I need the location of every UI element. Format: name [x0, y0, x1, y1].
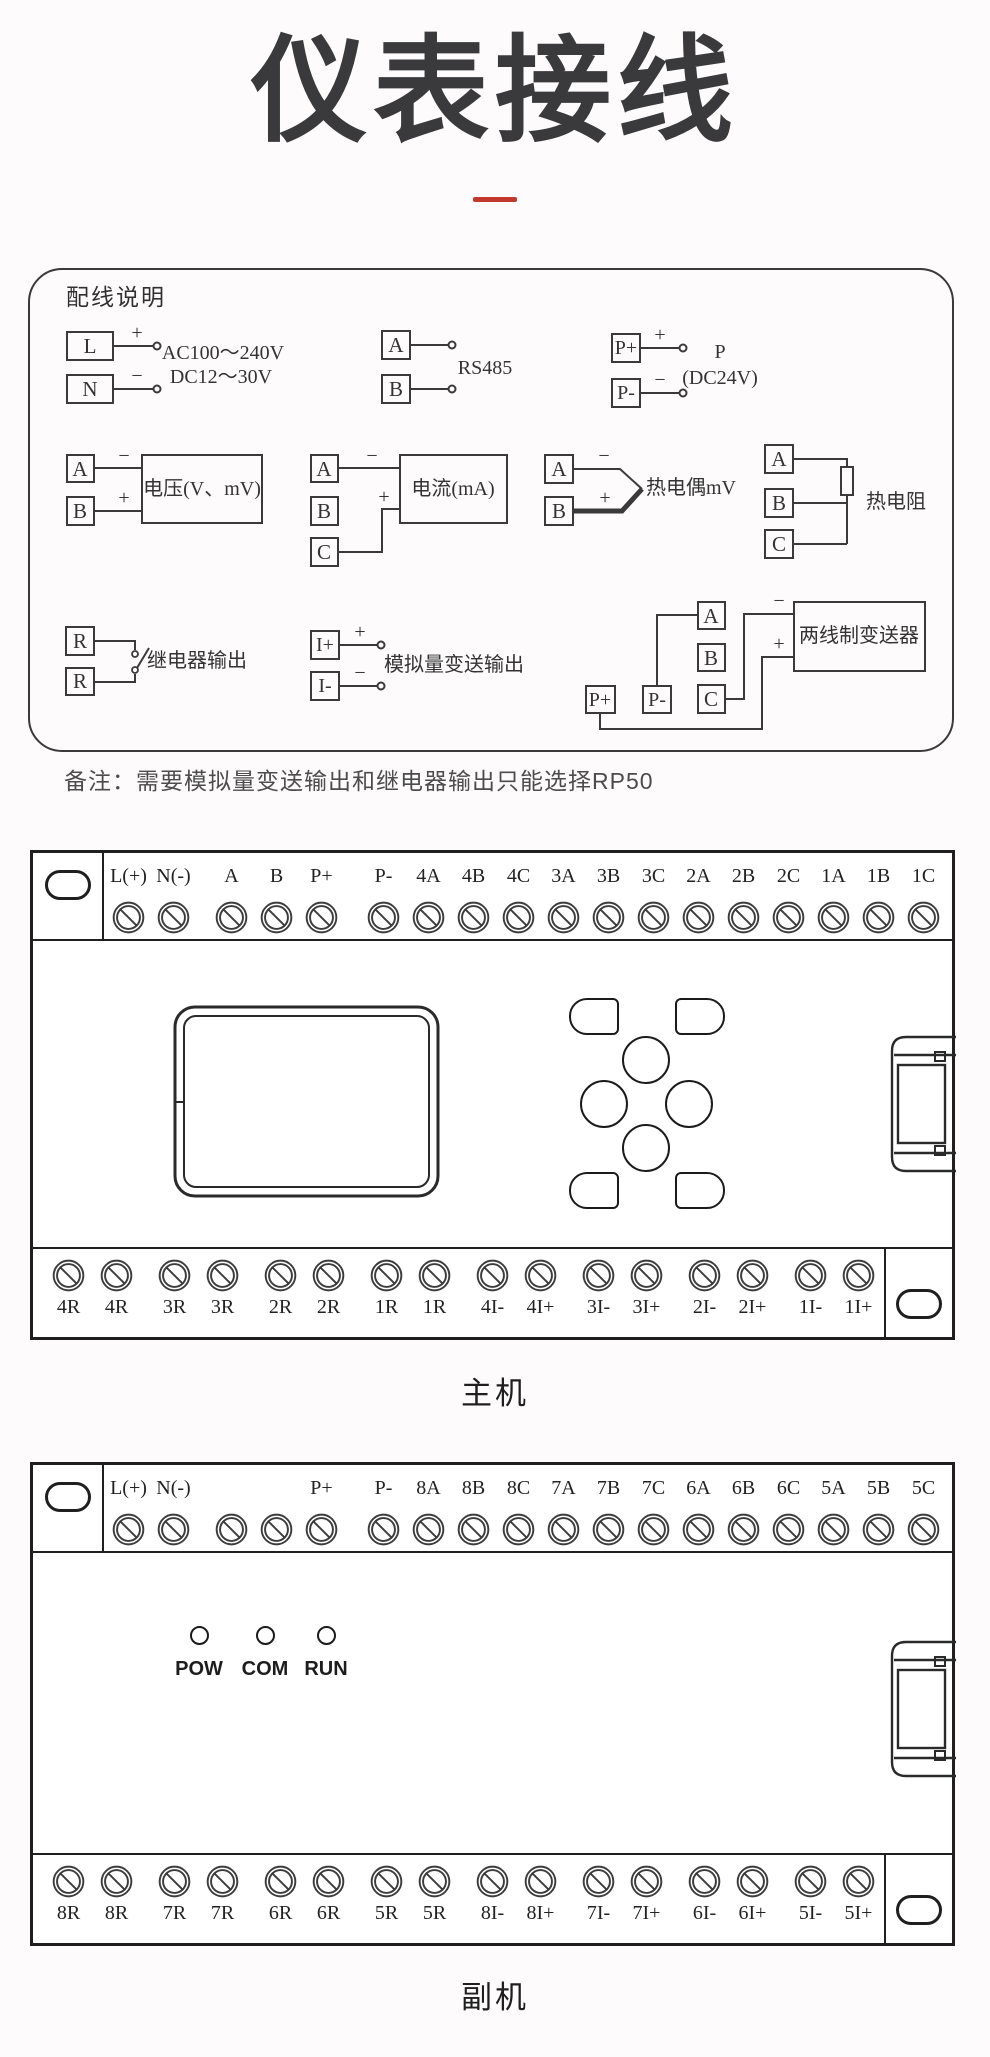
terminal-I-minus: I- — [318, 675, 331, 697]
screw-icon — [100, 1259, 133, 1292]
led-run-indicator — [317, 1626, 336, 1645]
power-supply-diagram: L + N − AC100～240V DC12～30V — [67, 322, 285, 403]
key-right-button — [665, 1080, 713, 1128]
terminal-label: 8R — [57, 1900, 80, 1926]
terminal: 4R — [46, 1249, 91, 1320]
terminal: L(+) — [106, 853, 151, 934]
plus-sign: + — [131, 322, 142, 344]
terminal-label: 1B — [867, 863, 890, 889]
screw-icon — [688, 1865, 721, 1898]
terminal-label: 4R — [105, 1294, 128, 1320]
screw-icon — [476, 1865, 509, 1898]
terminal: 1I- — [788, 1249, 833, 1320]
terminal-label: B — [270, 863, 283, 889]
terminal: 7R — [152, 1855, 197, 1926]
key-top-right-button — [675, 998, 725, 1035]
terminal: N(-) — [151, 1465, 196, 1546]
screw-icon — [637, 1513, 670, 1546]
terminal-A: A — [771, 447, 787, 471]
led-com: COM — [233, 1626, 297, 1681]
screw-icon — [592, 901, 625, 934]
thermocouple-diagram: A B − + 热电偶mV — [545, 445, 737, 525]
screw-icon — [862, 1513, 895, 1546]
terminal: 6R — [306, 1855, 351, 1926]
terminal: 5C — [901, 1465, 946, 1546]
current-input-diagram: A B C − + 电流(mA) — [311, 445, 507, 566]
mount-hole-cell — [884, 1855, 952, 1943]
minus-sign: − — [654, 369, 665, 391]
terminal-B: B — [772, 491, 786, 515]
terminal: 6I+ — [730, 1855, 775, 1926]
screw-icon — [370, 1259, 403, 1292]
terminal-label: 5R — [375, 1900, 398, 1926]
terminal: 4R — [94, 1249, 139, 1320]
terminal-label: P+ — [310, 863, 332, 889]
screw-icon — [524, 1865, 557, 1898]
terminal-label: 8I- — [481, 1900, 504, 1926]
terminal: B — [254, 853, 299, 934]
screw-icon — [305, 1513, 338, 1546]
screw-icon — [817, 901, 850, 934]
terminal-label: P+ — [310, 1475, 332, 1501]
terminal-label: 6R — [269, 1900, 292, 1926]
terminal-label: 4C — [507, 863, 530, 889]
terminal: 6B — [721, 1465, 766, 1546]
rs485-label: RS485 — [458, 357, 512, 379]
key-bottom-left-button — [569, 1172, 619, 1209]
screw-icon — [794, 1865, 827, 1898]
terminal-label: 1I- — [799, 1294, 822, 1320]
terminal: 8I- — [470, 1855, 515, 1926]
terminal-C: C — [704, 687, 718, 711]
terminal: 6R — [258, 1855, 303, 1926]
terminal-label: 1C — [912, 863, 935, 889]
terminal: 7C — [631, 1465, 676, 1546]
terminal: 3C — [631, 853, 676, 934]
terminal: 3I+ — [624, 1249, 669, 1320]
key-left-button — [580, 1080, 628, 1128]
transmitter-box-label: 两线制变送器 — [799, 624, 919, 647]
relay-output-diagram: R R 继电器输出 — [66, 627, 247, 695]
terminal: 3A — [541, 853, 586, 934]
screw-icon — [206, 1259, 239, 1292]
screw-icon — [367, 901, 400, 934]
terminal-label: 5C — [912, 1475, 935, 1501]
key-bottom-right-button — [675, 1172, 725, 1209]
screw-icon — [457, 901, 490, 934]
screw-icon — [582, 1865, 615, 1898]
terminal-label: 8I+ — [527, 1900, 555, 1926]
terminal-label: 7I- — [587, 1900, 610, 1926]
terminal-N: N — [82, 377, 97, 401]
terminal: 4A — [406, 853, 451, 934]
terminal: 2R — [258, 1249, 303, 1320]
terminal-label: N(-) — [156, 863, 190, 889]
terminal-label: L(+) — [110, 1475, 147, 1501]
terminal-label: 1R — [375, 1294, 398, 1320]
terminal-label: 3C — [642, 863, 665, 889]
terminal: 7I+ — [624, 1855, 669, 1926]
key-down-button — [622, 1124, 670, 1172]
minus-sign: − — [354, 662, 365, 684]
led-com-label: COM — [233, 1658, 297, 1681]
terminal-label: 6R — [317, 1900, 340, 1926]
sub-top-terminals: L(+) N(-) — [104, 1465, 952, 1551]
led-pow-label: POW — [167, 1658, 231, 1681]
screw-icon — [112, 901, 145, 934]
p24-diagram: P+ + P- − P (DC24V) — [612, 324, 758, 407]
terminal-B: B — [552, 499, 566, 523]
terminal-label: 4R — [57, 1294, 80, 1320]
plus-sign: + — [118, 487, 129, 509]
p24-label: P — [714, 341, 725, 363]
terminal: 6I- — [682, 1855, 727, 1926]
screw-icon — [412, 1513, 445, 1546]
sub-bottom-terminal-strip: 8R 8R 7R 7R — [33, 1853, 952, 1943]
side-connector — [888, 1035, 956, 1173]
screw-icon — [682, 901, 715, 934]
terminal-label: P- — [375, 1475, 393, 1501]
terminal-label: 5A — [821, 1475, 845, 1501]
terminal-label: 2R — [269, 1294, 292, 1320]
terminal-label: 3I+ — [633, 1294, 661, 1320]
screw-icon — [682, 1513, 715, 1546]
terminal: 3R — [152, 1249, 197, 1320]
terminal: 8R — [46, 1855, 91, 1926]
terminal — [254, 1465, 299, 1546]
terminal: 7B — [586, 1465, 631, 1546]
terminal: 5B — [856, 1465, 901, 1546]
terminal: P+ — [299, 853, 344, 934]
terminal: 5R — [412, 1855, 457, 1926]
screw-icon — [52, 1865, 85, 1898]
terminal-label: 7R — [163, 1900, 186, 1926]
terminal-label: A — [224, 863, 238, 889]
terminal-P-minus: P- — [648, 689, 666, 711]
terminal: N(-) — [151, 853, 196, 934]
terminal-label: N(-) — [156, 1475, 190, 1501]
main-unit-panel: L(+) N(-) A B — [30, 850, 955, 1340]
minus-sign: − — [118, 445, 129, 467]
thermocouple-label: 热电偶mV — [646, 476, 737, 499]
screw-icon — [412, 901, 445, 934]
power-range-dc: DC12～30V — [170, 366, 273, 388]
terminal: 2R — [306, 1249, 351, 1320]
screw-icon — [736, 1259, 769, 1292]
screw-icon — [637, 901, 670, 934]
screw-icon — [158, 1865, 191, 1898]
screw-icon — [206, 1865, 239, 1898]
terminal-label: 6B — [732, 1475, 755, 1501]
terminal: 6A — [676, 1465, 721, 1546]
plus-sign: + — [354, 621, 365, 643]
terminal-P-plus: P+ — [615, 337, 637, 359]
terminal: 1R — [364, 1249, 409, 1320]
analog-output-diagram: I+ + I- − 模拟量变送输出 — [311, 621, 524, 700]
screw-icon — [112, 1513, 145, 1546]
sub-unit-caption: 副机 — [0, 1972, 990, 2017]
terminal-label: 5R — [423, 1900, 446, 1926]
led-pow-indicator — [190, 1626, 209, 1645]
terminal-C: C — [317, 540, 331, 564]
screw-icon — [264, 1259, 297, 1292]
terminal-P-plus: P+ — [589, 689, 611, 711]
terminal-label: 2I- — [693, 1294, 716, 1320]
terminal-label: 7R — [211, 1900, 234, 1926]
terminal-B: B — [389, 377, 403, 401]
terminal-label: 4B — [462, 863, 485, 889]
terminal: 5R — [364, 1855, 409, 1926]
current-box-label: 电流(mA) — [411, 477, 494, 500]
page-title: 仪表接线 — [0, 28, 990, 156]
terminal: P- — [361, 1465, 406, 1546]
terminal-label: 6A — [686, 1475, 710, 1501]
terminal-label: 7I+ — [633, 1900, 661, 1926]
main-bottom-terminal-strip: 4R 4R 3R 3R — [33, 1247, 952, 1337]
screw-icon — [817, 1513, 850, 1546]
wiring-explanation-box: 配线说明 L + N − AC100～240V DC12～30V A B — [28, 268, 954, 752]
terminal: 2I+ — [730, 1249, 775, 1320]
terminal-label: 8B — [462, 1475, 485, 1501]
voltage-box-label: 电压(V、mV) — [143, 477, 261, 500]
terminal: 4B — [451, 853, 496, 934]
plus-sign: + — [599, 487, 610, 509]
lcd-display-window — [173, 1005, 440, 1198]
plus-sign: + — [378, 486, 389, 508]
screw-icon — [862, 901, 895, 934]
terminal: 7A — [541, 1465, 586, 1546]
sub-bottom-terminals: 8R 8R 7R 7R — [33, 1855, 884, 1943]
minus-sign: − — [773, 590, 784, 612]
mount-hole-cell — [33, 1465, 104, 1551]
terminal: 2I- — [682, 1249, 727, 1320]
p24-voltage: (DC24V) — [682, 367, 758, 389]
screw-icon — [907, 901, 940, 934]
terminal: 8B — [451, 1465, 496, 1546]
terminal-label: 1I+ — [845, 1294, 873, 1320]
screw-icon — [370, 1865, 403, 1898]
main-top-terminal-strip: L(+) N(-) A B — [33, 853, 952, 941]
terminal: 1C — [901, 853, 946, 934]
screw-icon — [907, 1513, 940, 1546]
terminal: 4C — [496, 853, 541, 934]
screw-icon — [502, 1513, 535, 1546]
power-range-ac: AC100～240V — [162, 342, 285, 364]
terminal-label: 5B — [867, 1475, 890, 1501]
terminal-A: A — [551, 457, 567, 481]
screw-icon — [312, 1865, 345, 1898]
screw-icon — [794, 1259, 827, 1292]
screw-icon — [100, 1865, 133, 1898]
terminal-B: B — [73, 499, 87, 523]
screw-icon — [305, 901, 338, 934]
terminal-P-minus: P- — [617, 382, 635, 404]
mount-hole-cell — [33, 853, 104, 939]
terminal-label: 3R — [211, 1294, 234, 1320]
terminal-label: 5I+ — [845, 1900, 873, 1926]
screw-icon — [630, 1259, 663, 1292]
led-com-indicator — [256, 1626, 275, 1645]
terminal-label: 8C — [507, 1475, 530, 1501]
terminal-label: 7C — [642, 1475, 665, 1501]
screw-icon — [260, 1513, 293, 1546]
terminal-B: B — [704, 646, 718, 670]
sub-top-terminal-strip: L(+) N(-) — [33, 1465, 952, 1553]
terminal: 1B — [856, 853, 901, 934]
screw-icon — [772, 901, 805, 934]
terminal: 3R — [200, 1249, 245, 1320]
screw-icon — [367, 1513, 400, 1546]
terminal-label: 1R — [423, 1294, 446, 1320]
terminal-label: 7B — [597, 1475, 620, 1501]
terminal-label: 2A — [686, 863, 710, 889]
minus-sign: − — [366, 445, 377, 467]
terminal-label: 5I- — [799, 1900, 822, 1926]
screw-icon — [842, 1865, 875, 1898]
rtd-diagram: A B C 热电阻 — [765, 445, 926, 558]
terminal: 8A — [406, 1465, 451, 1546]
terminal: 1R — [412, 1249, 457, 1320]
mount-hole — [45, 870, 91, 900]
rs485-diagram: A B RS485 — [382, 331, 512, 403]
terminal-A: A — [703, 604, 719, 628]
terminal-label: 3A — [551, 863, 575, 889]
terminal: 8C — [496, 1465, 541, 1546]
sub-unit-panel: L(+) N(-) — [30, 1462, 955, 1946]
rtd-label: 热电阻 — [866, 490, 926, 513]
led-run: RUN — [294, 1626, 358, 1681]
screw-icon — [524, 1259, 557, 1292]
terminal-label: 8A — [416, 1475, 440, 1501]
screw-icon — [547, 901, 580, 934]
terminal-label: 2I+ — [739, 1294, 767, 1320]
two-wire-transmitter-diagram: A B C P+ P- − + 两线制变送器 — [586, 590, 925, 729]
key-top-left-button — [569, 998, 619, 1035]
terminal-label: 6C — [777, 1475, 800, 1501]
terminal-label: 4I- — [481, 1294, 504, 1320]
mount-hole — [896, 1289, 942, 1319]
terminal: 4I+ — [518, 1249, 563, 1320]
screw-icon — [457, 1513, 490, 1546]
terminal: 2C — [766, 853, 811, 934]
keypad — [569, 998, 729, 1213]
title-underline-dash — [473, 197, 517, 202]
terminal: 4I- — [470, 1249, 515, 1320]
screw-icon — [215, 1513, 248, 1546]
screw-icon — [630, 1865, 663, 1898]
terminal-R2: R — [73, 669, 87, 693]
terminal: 5I+ — [836, 1855, 881, 1926]
screw-icon — [260, 901, 293, 934]
terminal-label: L(+) — [110, 863, 147, 889]
screw-icon — [842, 1259, 875, 1292]
terminal: 2B — [721, 853, 766, 934]
terminal-label: 4A — [416, 863, 440, 889]
note-text: 备注：需要模拟量变送输出和继电器输出只能选择RP50 — [64, 762, 654, 796]
screw-icon — [772, 1513, 805, 1546]
minus-sign: − — [131, 365, 142, 387]
terminal-label: 6I- — [693, 1900, 716, 1926]
screw-icon — [158, 1259, 191, 1292]
terminal: P+ — [299, 1465, 344, 1546]
terminal: 1A — [811, 853, 856, 934]
screw-icon — [582, 1259, 615, 1292]
screw-icon — [476, 1259, 509, 1292]
analog-output-label: 模拟量变送输出 — [384, 653, 524, 676]
terminal: 5A — [811, 1465, 856, 1546]
terminal-label: 3B — [597, 863, 620, 889]
terminal: 3I- — [576, 1249, 621, 1320]
terminal: 7I- — [576, 1855, 621, 1926]
terminal-A: A — [316, 457, 332, 481]
main-bottom-terminals: 4R 4R 3R 3R — [33, 1249, 884, 1337]
terminal-C: C — [772, 532, 786, 556]
terminal: 6C — [766, 1465, 811, 1546]
screw-icon — [418, 1259, 451, 1292]
terminal-B: B — [317, 499, 331, 523]
terminal: L(+) — [106, 1465, 151, 1546]
terminal-label: 8R — [105, 1900, 128, 1926]
screw-icon — [264, 1865, 297, 1898]
resistor-symbol — [841, 467, 853, 495]
terminal: 8I+ — [518, 1855, 563, 1926]
screw-icon — [52, 1259, 85, 1292]
mount-hole — [896, 1895, 942, 1925]
terminal — [209, 1465, 254, 1546]
led-run-label: RUN — [294, 1658, 358, 1681]
terminal-label: 2B — [732, 863, 755, 889]
screw-icon — [727, 901, 760, 934]
terminal: 8R — [94, 1855, 139, 1926]
screw-icon — [727, 1513, 760, 1546]
terminal-L: L — [84, 334, 97, 358]
screw-icon — [688, 1259, 721, 1292]
terminal-label: 1A — [821, 863, 845, 889]
wiring-diagrams: L + N − AC100～240V DC12～30V A B RS485 — [30, 270, 956, 754]
terminal: 3B — [586, 853, 631, 934]
terminal-I-plus: I+ — [316, 634, 334, 656]
key-up-button — [622, 1036, 670, 1084]
terminal: P- — [361, 853, 406, 934]
terminal: 2A — [676, 853, 721, 934]
main-top-terminals: L(+) N(-) A B — [104, 853, 952, 939]
screw-icon — [312, 1259, 345, 1292]
mount-hole — [45, 1482, 91, 1512]
terminal-R1: R — [73, 629, 87, 653]
main-unit-caption: 主机 — [0, 1368, 990, 1413]
terminal-label: 3R — [163, 1294, 186, 1320]
screw-icon — [157, 1513, 190, 1546]
screw-icon — [157, 901, 190, 934]
terminal: 1I+ — [836, 1249, 881, 1320]
mount-hole-cell — [884, 1249, 952, 1337]
led-pow: POW — [167, 1626, 231, 1681]
terminal: A — [209, 853, 254, 934]
terminal-label: 3I- — [587, 1294, 610, 1320]
plus-sign: + — [773, 633, 784, 655]
terminal-A: A — [72, 457, 88, 481]
side-connector — [888, 1640, 956, 1778]
terminal-label: 2R — [317, 1294, 340, 1320]
terminal-label: P- — [375, 863, 393, 889]
relay-label: 继电器输出 — [147, 649, 247, 672]
screw-icon — [418, 1865, 451, 1898]
minus-sign: − — [598, 445, 609, 467]
screw-icon — [592, 1513, 625, 1546]
terminal-label: 6I+ — [739, 1900, 767, 1926]
terminal-label: 4I+ — [527, 1294, 555, 1320]
terminal-A: A — [388, 333, 404, 357]
